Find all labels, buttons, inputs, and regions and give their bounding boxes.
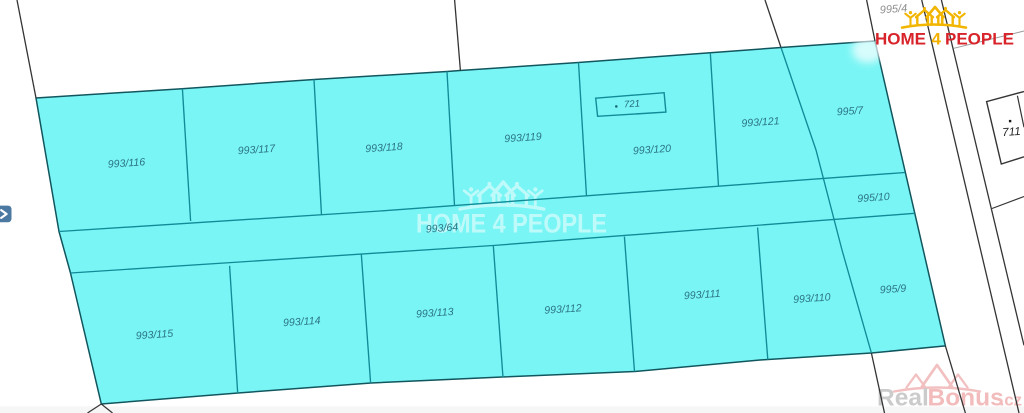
svg-text:993/111: 993/111 — [684, 288, 721, 303]
svg-text:4: 4 — [932, 29, 942, 48]
svg-text:711: 711 — [1002, 126, 1021, 139]
svg-text:PEOPLE: PEOPLE — [945, 29, 1014, 48]
svg-text:993/64: 993/64 — [425, 221, 458, 235]
svg-text:Bonus: Bonus — [928, 385, 1004, 412]
svg-text:995/10: 995/10 — [857, 191, 890, 205]
svg-text:HOME: HOME — [875, 29, 926, 48]
svg-text:Real: Real — [877, 385, 929, 412]
svg-text:995/7: 995/7 — [836, 105, 864, 119]
svg-text:721: 721 — [624, 98, 641, 110]
svg-text:995/4: 995/4 — [879, 3, 907, 17]
svg-text:.cz: .cz — [1000, 391, 1023, 410]
svg-text:995/9: 995/9 — [879, 283, 906, 297]
